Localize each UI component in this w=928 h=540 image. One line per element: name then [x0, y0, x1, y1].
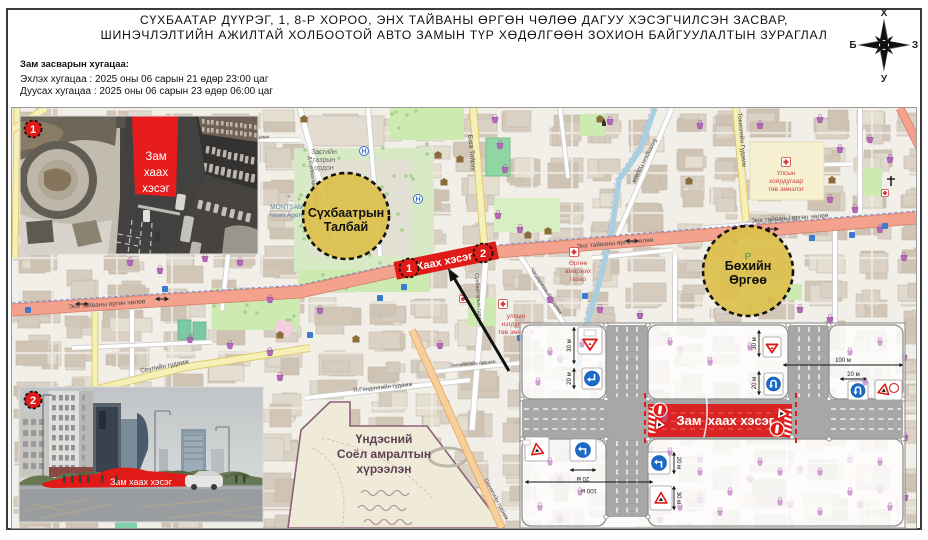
svg-text:Өргөө: Өргөө [569, 260, 588, 267]
svg-text:Б: Б [849, 40, 856, 51]
svg-text:1: 1 [30, 124, 36, 136]
svg-text:Зам: Зам [145, 151, 166, 163]
svg-text:Х: Х [881, 8, 888, 19]
svg-text:У: У [881, 74, 888, 85]
svg-text:хаах: хаах [144, 167, 168, 179]
svg-text:30 м: 30 м [567, 339, 573, 351]
svg-text:Засгийн: Засгийн [311, 148, 337, 156]
svg-text:20 м: 20 м [567, 372, 573, 384]
svg-text:H: H [361, 149, 366, 156]
svg-text:Бөхийн: Бөхийн [725, 259, 772, 273]
svg-text:Зам хаах хэсэг: Зам хаах хэсэг [110, 477, 173, 487]
svg-text:Үндэсний: Үндэсний [356, 432, 413, 446]
svg-text:Талбай: Талбай [324, 220, 368, 234]
svg-text:төв эмнэлэг: төв эмнэлэг [768, 186, 805, 193]
svg-text:хаах хэсэг: хаах хэсэг [708, 413, 775, 428]
svg-text:20 м: 20 м [675, 457, 681, 469]
svg-text:улсын: улсын [507, 313, 526, 320]
svg-text:100 м: 100 м [581, 487, 597, 493]
svg-text:20 м: 20 м [752, 377, 758, 389]
svg-text:20 м: 20 м [577, 475, 589, 481]
svg-text:Сүхбаатрын: Сүхбаатрын [308, 206, 384, 220]
svg-text:хүрээлэн: хүрээлэн [357, 462, 412, 476]
svg-text:газрын: газрын [313, 157, 335, 164]
svg-text:амаржих: амаржих [565, 268, 592, 275]
svg-text:2: 2 [480, 248, 486, 260]
svg-text:1: 1 [406, 263, 412, 275]
svg-text:хоёрдугаар: хоёрдугаар [769, 178, 803, 185]
svg-text:Өргөө: Өргөө [729, 273, 767, 287]
svg-text:хэсэг: хэсэг [142, 183, 170, 195]
svg-text:Зам: Зам [677, 413, 702, 428]
svg-text:20 м: 20 м [847, 372, 859, 378]
svg-text:ордон: ордон [314, 165, 334, 172]
svg-text:*: * [287, 193, 291, 203]
svg-text:З: З [912, 40, 918, 51]
svg-text:30 м: 30 м [752, 337, 758, 349]
svg-text:H: H [415, 197, 420, 204]
svg-text:Улсын: Улсын [777, 170, 796, 177]
svg-text:2: 2 [30, 395, 36, 407]
svg-text:газар: газар [570, 276, 586, 283]
svg-text:Соёл амралтын: Соёл амралтын [337, 447, 431, 461]
svg-text:100 м: 100 м [835, 358, 851, 364]
